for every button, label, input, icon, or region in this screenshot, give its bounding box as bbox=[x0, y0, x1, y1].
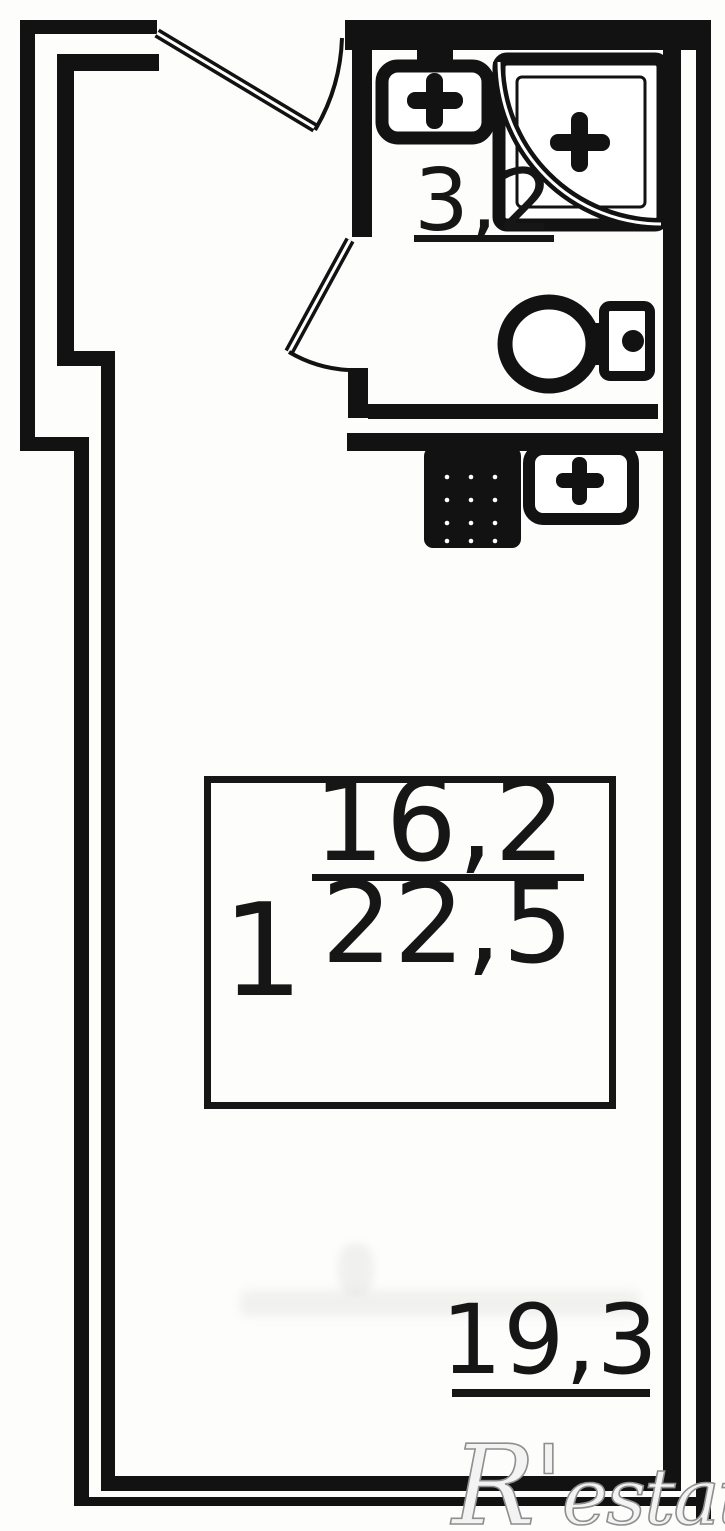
total-area-label: 22,5 bbox=[308, 868, 588, 980]
balcony-area-label: 19,3 bbox=[438, 1292, 662, 1388]
floor-plan: 3,2 1 16,2 22,5 19,3 R'estate bbox=[0, 0, 725, 1531]
kitchen-sink-icon bbox=[529, 443, 633, 519]
room-number-label: 1 bbox=[222, 888, 304, 1016]
entry-door-swing-arc bbox=[315, 38, 342, 130]
bathroom-door bbox=[289, 240, 350, 370]
bathroom-area-label: 3,2 bbox=[404, 158, 564, 244]
entry-door bbox=[157, 33, 342, 130]
balcony-area-underline bbox=[452, 1389, 650, 1397]
bathroom-sink-icon bbox=[382, 48, 488, 138]
bathroom-door-swing-arc bbox=[289, 352, 348, 370]
toilet-icon bbox=[505, 302, 650, 386]
flush-button bbox=[622, 330, 644, 352]
brand-watermark: R'estate bbox=[452, 1432, 725, 1531]
stove-icon bbox=[424, 447, 521, 548]
bathroom-area-underline bbox=[414, 235, 554, 242]
